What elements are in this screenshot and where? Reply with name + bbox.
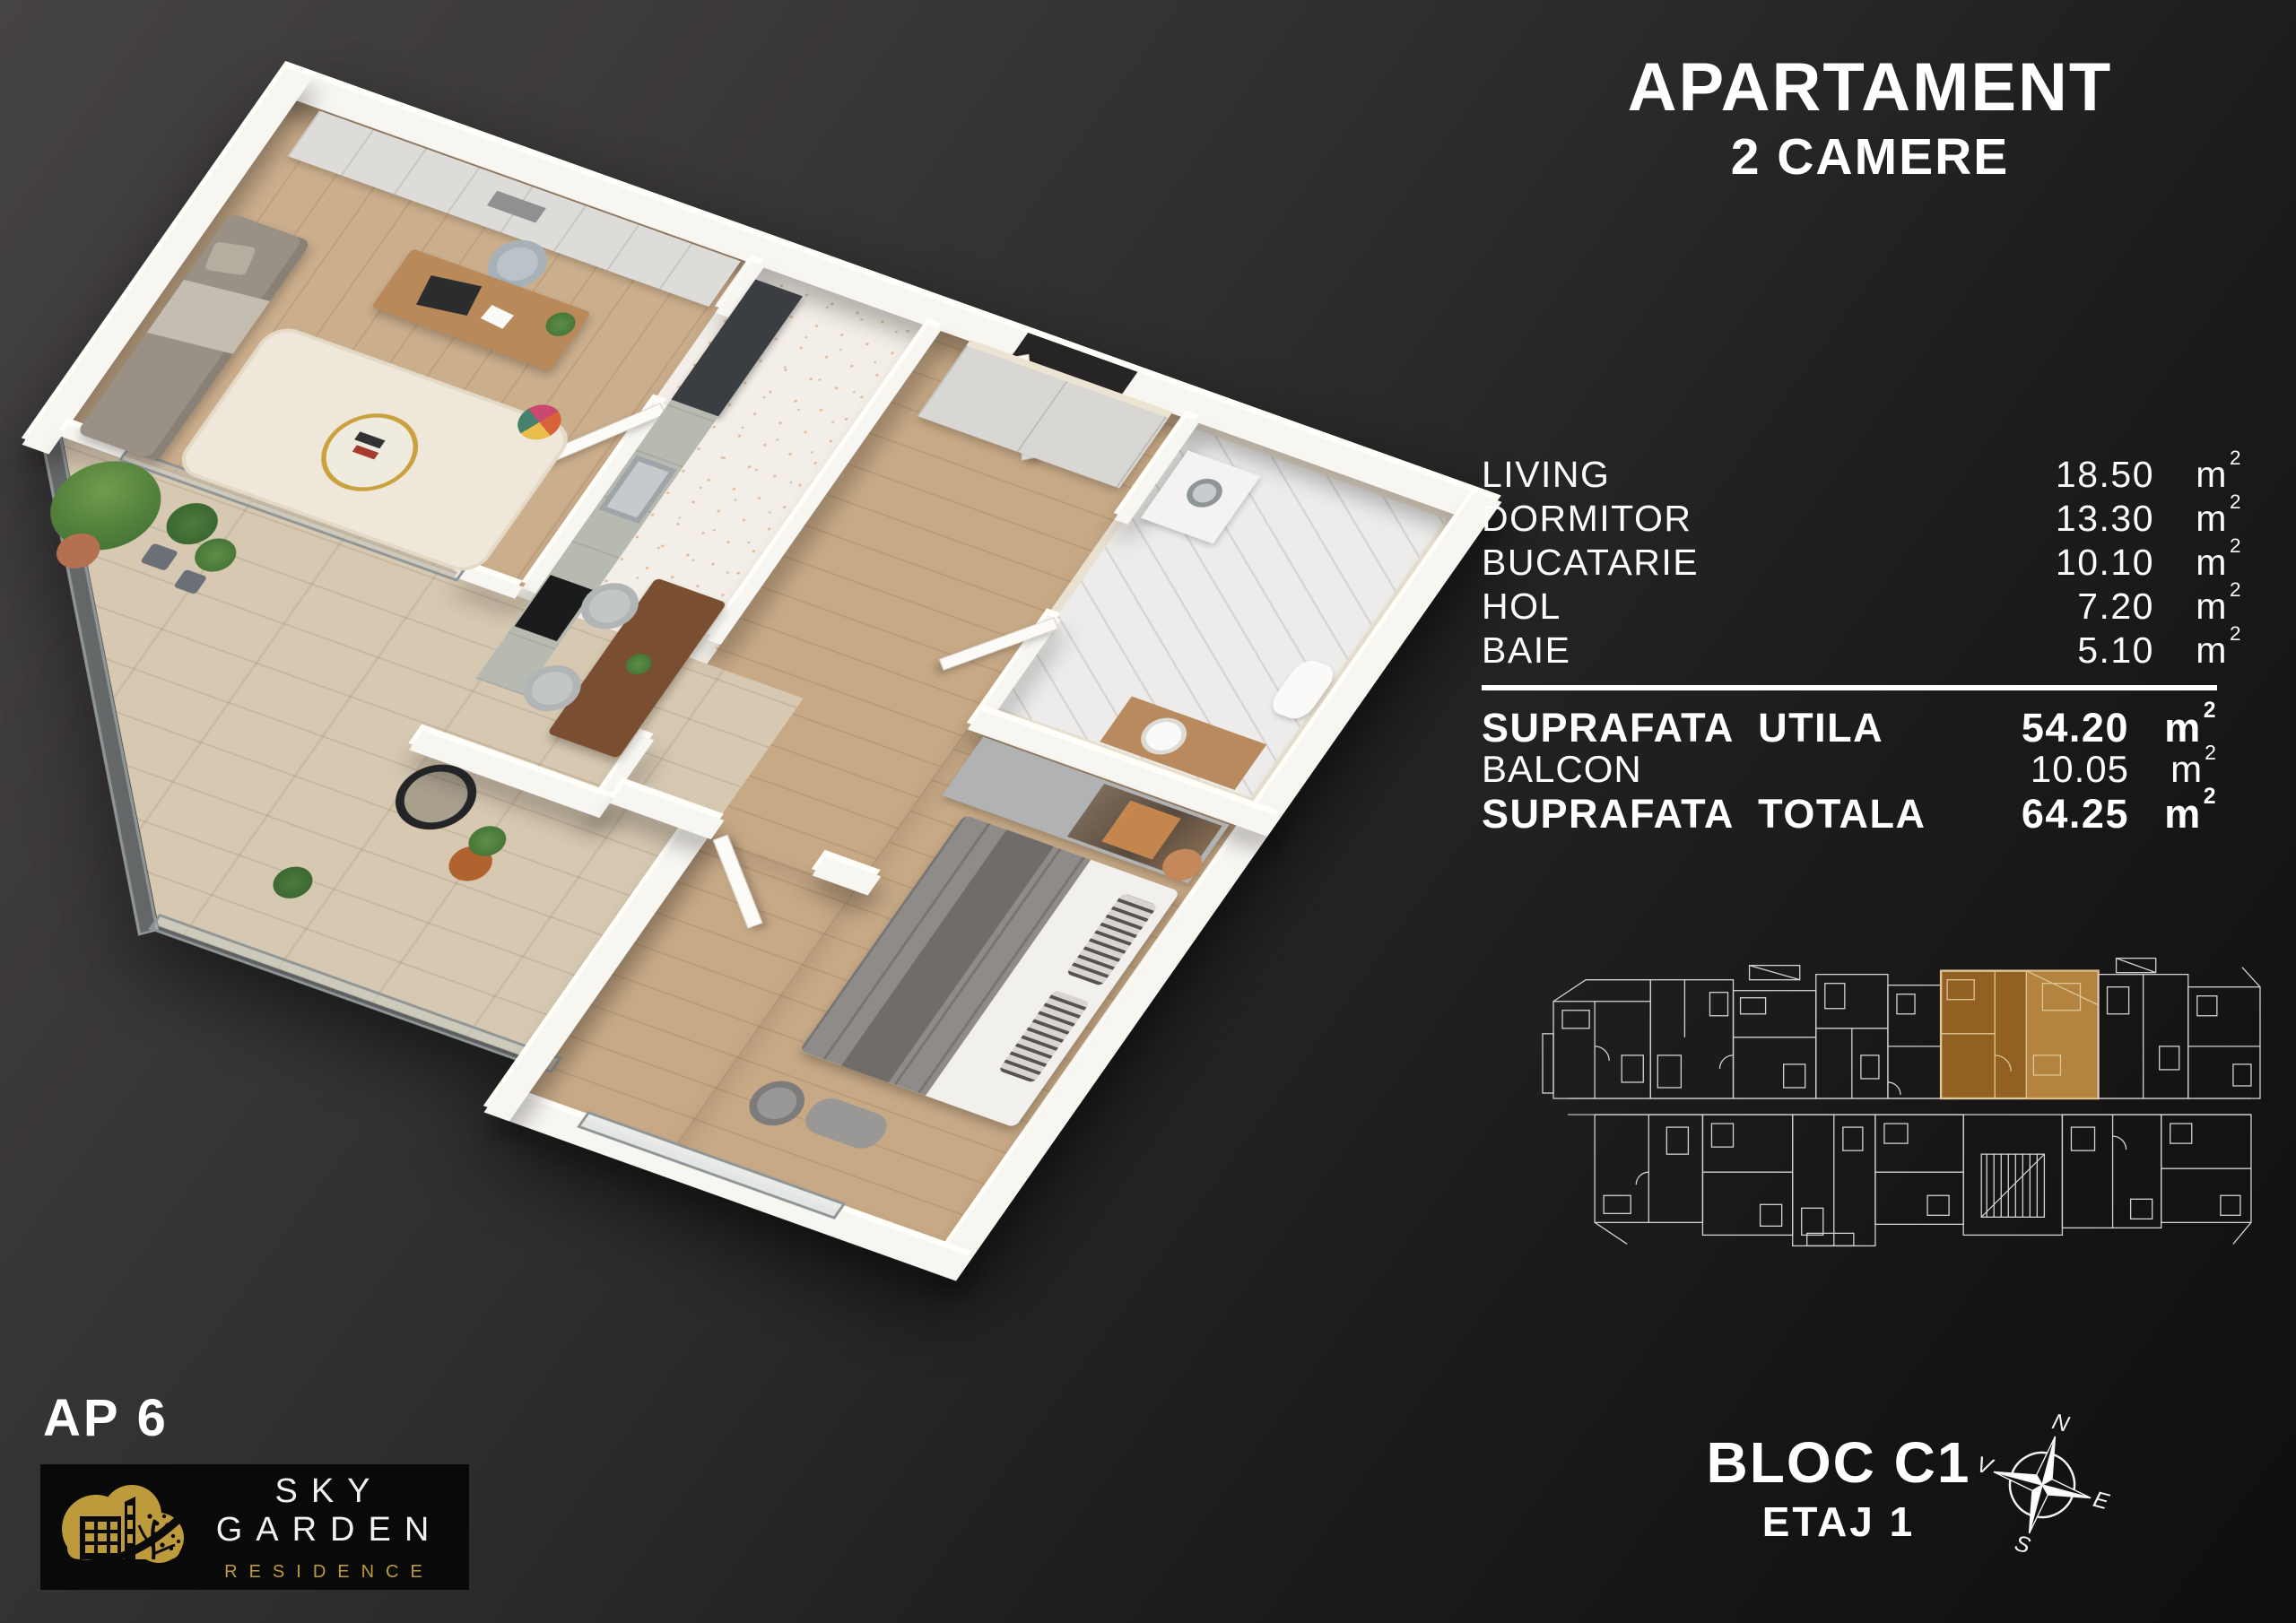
room-value: 13.30 — [1966, 498, 2154, 540]
compass-south-label: S — [2012, 1531, 2033, 1558]
table-row: BALCON 10.05 m2 — [1482, 748, 2217, 791]
compass-rose-icon: N E S V — [1966, 1404, 2118, 1566]
summary-label: BALCON — [1482, 748, 1941, 791]
block-floorplan-blueprint — [1541, 947, 2271, 1248]
table-row: SUPRAFATA TOTALA 64.25 m2 — [1482, 791, 2217, 834]
room-unit: m2 — [2154, 586, 2242, 628]
room-label: HOL — [1482, 586, 1966, 628]
room-unit: m2 — [2154, 454, 2242, 496]
room-unit: m2 — [2154, 498, 2242, 540]
room-area-table: LIVING 18.50 m2 DORMITOR 13.30 m2 BUCATA… — [1482, 454, 2242, 673]
room-label: BAIE — [1482, 629, 1966, 672]
room-unit: m2 — [2154, 542, 2242, 584]
room-value: 18.50 — [1966, 454, 2154, 496]
compass-north-label: N — [2049, 1409, 2073, 1437]
room-value: 5.10 — [1966, 629, 2154, 672]
table-row: LIVING 18.50 m2 — [1482, 454, 2242, 498]
logo-emblem-icon — [49, 1471, 202, 1583]
poster-canvas: APARTAMENT 2 CAMERE LIVING 18.50 m2 DORM… — [0, 0, 2296, 1623]
summary-label: SUPRAFATA UTILA — [1482, 705, 1941, 751]
title-block: APARTAMENT 2 CAMERE — [1525, 52, 2215, 184]
table-row: BAIE 5.10 m2 — [1482, 629, 2242, 673]
table-row: HOL 7.20 m2 — [1482, 586, 2242, 629]
table-row: SUPRAFATA UTILA 54.20 m2 — [1482, 705, 2217, 748]
summary-value: 10.05 — [1941, 748, 2129, 791]
summary-unit: m2 — [2129, 791, 2217, 838]
page-title: APARTAMENT — [1525, 52, 2215, 125]
summary-value: 64.25 — [1941, 791, 2129, 838]
area-summary-table: SUPRAFATA UTILA 54.20 m2 BALCON 10.05 m2… — [1482, 705, 2217, 834]
room-label: LIVING — [1482, 454, 1966, 496]
logo-name: SKY GARDEN — [202, 1472, 457, 1549]
room-value: 10.10 — [1966, 542, 2154, 584]
summary-value: 54.20 — [1941, 705, 2129, 751]
compass-east-label: E — [2091, 1487, 2112, 1515]
room-value: 7.20 — [1966, 586, 2154, 628]
block-name: BLOC C1 — [1684, 1429, 1993, 1496]
room-label: DORMITOR — [1482, 498, 1966, 540]
room-label: BUCATARIE — [1482, 542, 1966, 584]
table-row: DORMITOR 13.30 m2 — [1482, 498, 2242, 542]
page-subtitle: 2 CAMERE — [1525, 130, 2215, 184]
logo-residence-label: RESIDENCE — [202, 1562, 457, 1583]
room-unit: m2 — [2154, 629, 2242, 672]
compass-west-label: V — [1974, 1452, 1997, 1480]
logo-text: SKY GARDEN RESIDENCE — [202, 1472, 469, 1583]
apartment-3d-floorplan — [0, 99, 1459, 1248]
divider — [1482, 685, 2217, 690]
summary-label: SUPRAFATA TOTALA — [1482, 791, 1941, 838]
block-label: BLOC C1 ETAJ 1 — [1684, 1429, 1993, 1546]
table-row: BUCATARIE 10.10 m2 — [1482, 542, 2242, 586]
apartment-number-label: AP 6 — [43, 1388, 169, 1448]
highlighted-apartment — [1941, 971, 2098, 1098]
sky-garden-logo: SKY GARDEN RESIDENCE — [40, 1464, 469, 1590]
block-floor: ETAJ 1 — [1684, 1497, 1993, 1546]
